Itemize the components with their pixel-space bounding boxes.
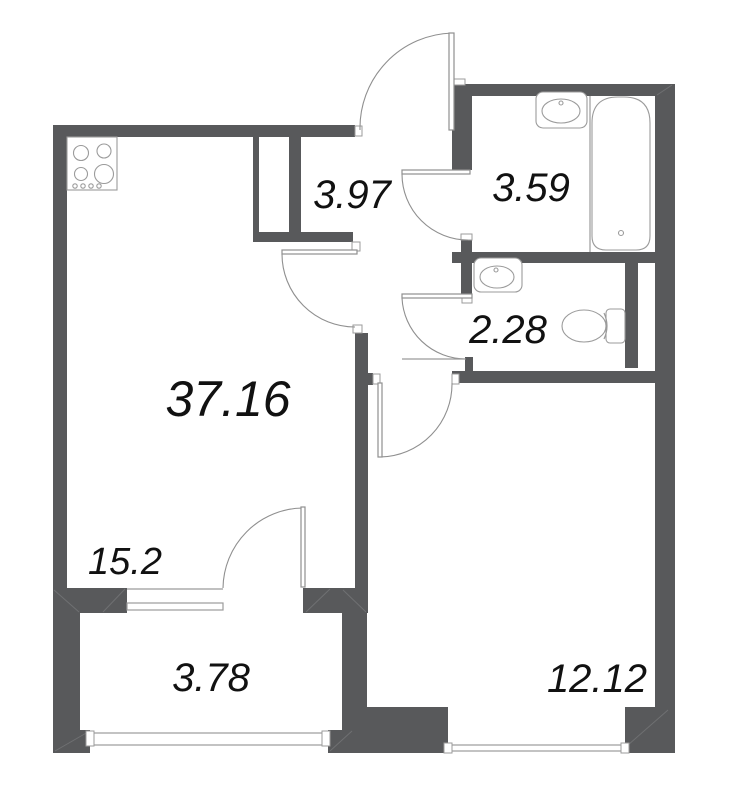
label-bathroom-area: 3.59 (492, 166, 570, 210)
wall (360, 707, 448, 753)
bathroom-door-arc (402, 174, 468, 240)
jamb-cap (452, 374, 459, 384)
wall (625, 707, 675, 753)
duct-wall (253, 137, 259, 232)
wall (355, 373, 373, 385)
jamb-cap (355, 126, 362, 136)
balcony-window (90, 733, 328, 745)
floor-plan: 37.16 3.97 3.59 2.28 15.2 3.78 12.12 (0, 0, 733, 800)
toilet-door-arc (402, 298, 466, 359)
window-mullion (621, 743, 629, 753)
wall (53, 125, 355, 137)
bedroom-window (448, 745, 625, 751)
wall (655, 84, 675, 753)
label-bedroom-area: 12.12 (547, 657, 647, 701)
wall (53, 125, 67, 613)
window-mullion (444, 743, 452, 753)
window-mullion (86, 731, 94, 746)
label-hallway-area: 3.97 (313, 173, 393, 217)
kitchen-door-leaf (282, 250, 357, 254)
wall (465, 357, 473, 371)
balcony-door-arc (223, 508, 303, 588)
window-mullion (322, 731, 330, 746)
label-balcony-area: 3.78 (172, 656, 251, 700)
balcony-door-leaf (301, 507, 305, 587)
label-toilet-area: 2.28 (468, 308, 548, 352)
window (127, 603, 223, 610)
bedroom-door-arc (380, 383, 452, 457)
toilet-sink-icon (474, 258, 522, 292)
toilet-door-leaf (402, 294, 472, 298)
kitchen-door-arc (282, 254, 355, 327)
wall (452, 84, 472, 170)
bathroom-sink-icon (536, 92, 587, 128)
wall (53, 588, 80, 753)
entrance-door-leaf (449, 33, 454, 130)
entrance-door-arc (360, 33, 452, 130)
duct-wall (289, 137, 301, 232)
toilet-icon (562, 309, 625, 343)
wall (461, 263, 472, 297)
jamb-cap (461, 234, 472, 240)
stove-icon (67, 137, 117, 190)
label-total-area: 37.16 (165, 371, 290, 427)
floor-plan-svg: 37.16 3.97 3.59 2.28 15.2 3.78 12.12 (0, 0, 733, 800)
jamb-cap (453, 79, 465, 85)
bathroom-door-leaf (402, 170, 470, 174)
doors (223, 33, 472, 588)
label-kitchen-living-area: 15.2 (88, 541, 162, 583)
wall (625, 263, 638, 368)
bedroom-door-leaf (378, 383, 382, 457)
bathtub-icon (590, 96, 650, 252)
jamb-cap (353, 325, 362, 333)
wall (452, 371, 675, 383)
wall (461, 240, 472, 252)
wall (253, 232, 353, 242)
